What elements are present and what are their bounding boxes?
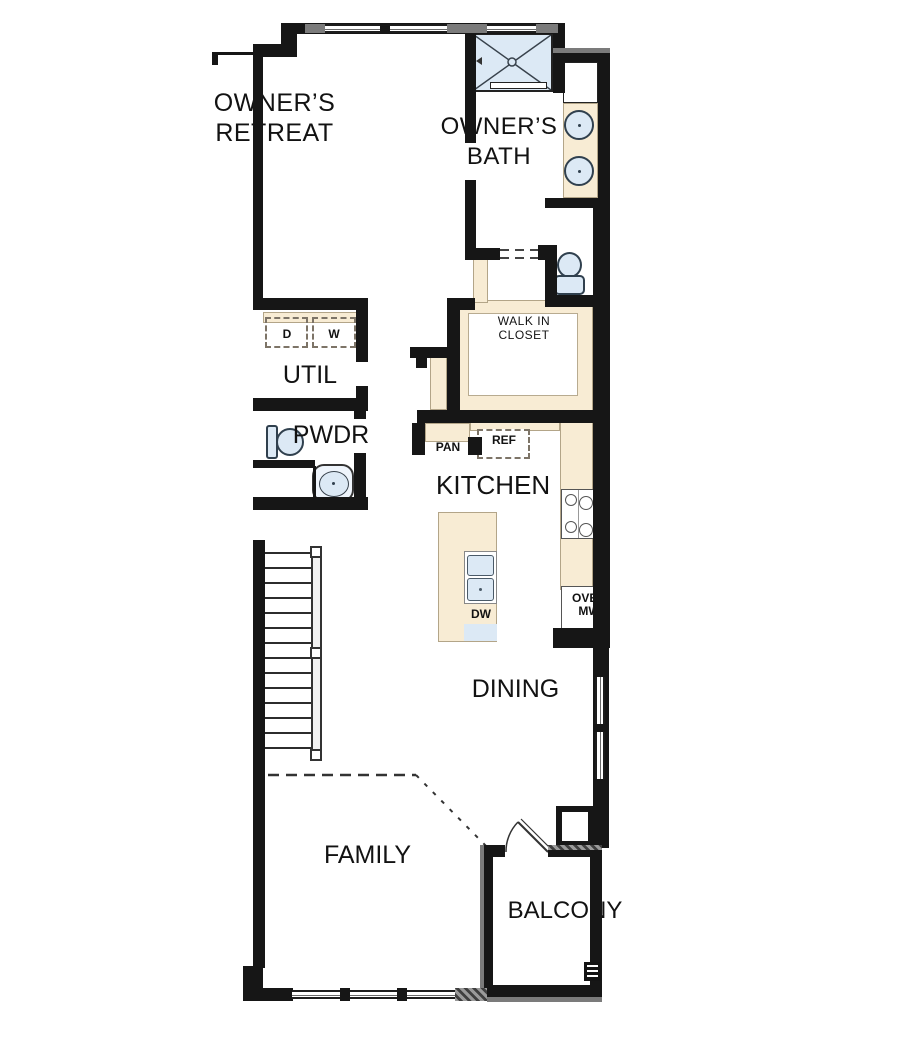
window — [407, 990, 455, 999]
balcony-wall-cap — [548, 845, 602, 850]
wall — [253, 497, 368, 510]
wall-cap — [305, 24, 325, 33]
party-wall-tick — [212, 52, 218, 65]
balcony-wall — [487, 985, 602, 997]
party-wall-line — [212, 52, 253, 55]
wall — [253, 50, 263, 308]
window — [595, 677, 605, 724]
wall-cap — [536, 24, 558, 33]
wall — [545, 198, 610, 208]
wall — [243, 988, 293, 1001]
wall — [412, 423, 425, 455]
wall — [465, 33, 476, 143]
door-hinge-nub — [416, 358, 427, 368]
wall-hatched-ledge — [455, 988, 487, 1001]
wall — [410, 347, 447, 358]
window — [390, 24, 447, 33]
window — [487, 24, 536, 33]
wall — [598, 50, 610, 203]
wall — [468, 437, 482, 455]
window — [325, 24, 380, 33]
wall — [465, 180, 476, 248]
wall-cap — [447, 24, 487, 33]
wall — [465, 248, 500, 260]
wall — [253, 398, 368, 411]
wall — [253, 460, 315, 468]
window-post — [397, 988, 407, 1001]
balcony-door — [506, 819, 551, 852]
wall — [447, 298, 460, 418]
wall — [545, 245, 557, 302]
wall — [243, 966, 263, 988]
balcony-drain — [584, 962, 601, 981]
wall — [356, 298, 368, 362]
balcony-wall — [484, 845, 505, 857]
wall — [253, 540, 265, 968]
wall — [313, 466, 316, 498]
annotation-overlay — [0, 0, 923, 1047]
wall — [545, 295, 610, 307]
floor-plan: OWNER’S RETREAT OWNER’S BATH WALK IN CLO… — [0, 0, 923, 1047]
window — [292, 990, 340, 999]
wall — [553, 33, 565, 93]
balcony-wall-cap — [487, 997, 602, 1002]
wall — [593, 198, 610, 648]
balcony-wall-cap — [480, 845, 484, 997]
wall — [417, 410, 593, 423]
wall — [253, 298, 368, 310]
door-hinge-nub — [354, 411, 366, 419]
door-hinge-nub — [356, 386, 368, 398]
balcony-storage-closet — [556, 806, 594, 847]
window — [595, 732, 605, 779]
window — [350, 990, 397, 999]
wall-cap — [553, 48, 610, 53]
window-post — [340, 988, 350, 1001]
